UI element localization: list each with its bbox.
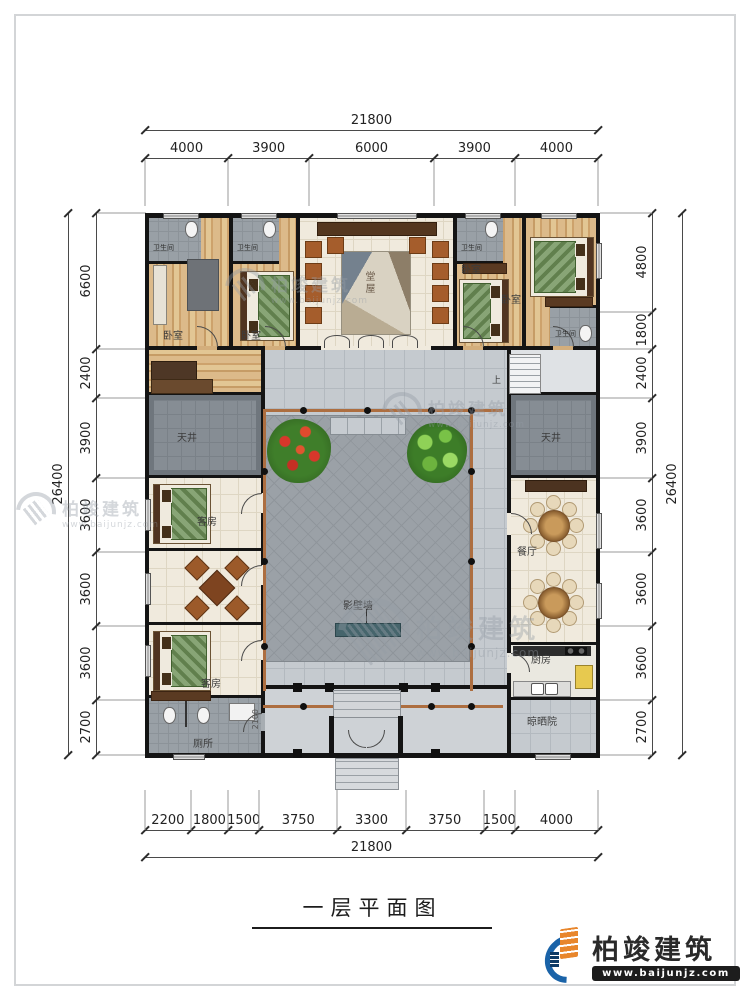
window bbox=[145, 573, 151, 605]
dim-value: 3900 bbox=[252, 141, 285, 156]
dim-value: 6600 bbox=[79, 264, 94, 297]
hall-door-arc bbox=[358, 335, 384, 348]
dim-value: 26400 bbox=[665, 463, 680, 504]
stairs-icon bbox=[509, 354, 541, 394]
hall-door-arc bbox=[324, 335, 350, 348]
company-logo: 柏竣建筑 www.baijunjz.com bbox=[546, 926, 741, 988]
dim-value: 3600 bbox=[79, 498, 94, 531]
window bbox=[173, 754, 205, 760]
cabinet-icon bbox=[545, 297, 593, 307]
entry-steps-inner bbox=[333, 690, 401, 718]
dim-value: 3300 bbox=[355, 813, 388, 828]
window bbox=[337, 213, 417, 219]
logo-block-icon bbox=[550, 952, 559, 967]
drying-yard-label: 晾晒院 bbox=[527, 713, 557, 728]
dim-value: 21800 bbox=[351, 840, 392, 855]
dining-label: 餐厅 bbox=[517, 543, 537, 558]
hall-label: 堂屋 bbox=[361, 271, 376, 295]
skywell-left-floor bbox=[149, 395, 261, 475]
floor-plan-sheet: 21800 40003900600039004000 2200180015003… bbox=[0, 0, 750, 1000]
wardrobe-icon bbox=[153, 265, 167, 325]
screen-wall-icon bbox=[335, 623, 401, 637]
bedroom-4-label: 卧室 bbox=[501, 291, 521, 306]
cabinet-icon bbox=[151, 379, 213, 394]
dresser-icon bbox=[187, 259, 219, 311]
window bbox=[596, 583, 602, 619]
dim-value: 2700 bbox=[635, 711, 650, 744]
bed-icon bbox=[530, 237, 594, 297]
floor-plan: 上 影壁墙 2100 bbox=[145, 213, 600, 758]
company-name: 柏竣建筑 bbox=[592, 928, 716, 967]
dim-value: 3600 bbox=[635, 646, 650, 679]
hob-icon bbox=[565, 647, 587, 655]
dim-value: 3900 bbox=[79, 421, 94, 454]
sideboard-icon bbox=[525, 480, 587, 492]
bathroom-1-label: 卫生间 bbox=[153, 243, 174, 253]
dim-bottom-segments: 22001800150037503300375015004000 bbox=[145, 830, 598, 831]
dining-table-icon bbox=[524, 573, 582, 631]
dim-value: 1800 bbox=[635, 313, 650, 346]
stairs-up-label: 上 bbox=[492, 373, 501, 386]
title-underline bbox=[252, 927, 492, 929]
dim-value: 3600 bbox=[79, 572, 94, 605]
bedroom-2-label: 卧室 bbox=[241, 327, 261, 342]
guestroom-2-label: 客房 bbox=[201, 675, 221, 690]
dim-value: 2400 bbox=[635, 357, 650, 390]
dim-value: 3750 bbox=[282, 813, 315, 828]
bathroom-4-label: 卫生间 bbox=[555, 329, 576, 339]
toilet-icon bbox=[263, 221, 276, 238]
skywell-right-label: 天井 bbox=[541, 429, 561, 444]
window bbox=[465, 213, 501, 219]
kitchen-label: 厨房 bbox=[531, 651, 551, 666]
cabinet-icon bbox=[151, 691, 211, 701]
dim-right-segments: 48001800240039003600360036002700 bbox=[652, 213, 653, 755]
window bbox=[241, 213, 277, 219]
console-table-icon bbox=[317, 222, 437, 236]
wall-east bbox=[596, 213, 600, 758]
dim-value: 4000 bbox=[540, 813, 573, 828]
drawing-title: 一层平面图 bbox=[255, 892, 490, 922]
logo-building-icon bbox=[560, 927, 578, 960]
bedroom-1-label: 卧室 bbox=[163, 327, 183, 342]
dim-left-total: 26400 bbox=[68, 213, 69, 755]
dim-right-total: 26400 bbox=[682, 213, 683, 755]
dim-top-segments: 40003900600039004000 bbox=[145, 158, 598, 159]
dim-value: 3600 bbox=[79, 646, 94, 679]
dim-value: 2700 bbox=[79, 711, 94, 744]
bedroom-3-label: 卧室 bbox=[461, 261, 481, 276]
inner-dimension: 2100 bbox=[251, 709, 260, 729]
dim-bottom-total: 21800 bbox=[145, 857, 598, 858]
dim-value: 4000 bbox=[540, 141, 573, 156]
dim-value: 21800 bbox=[351, 113, 392, 128]
dim-top-total: 21800 bbox=[145, 130, 598, 131]
screen-wall-label: 影壁墙 bbox=[343, 597, 373, 612]
dim-value: 4000 bbox=[170, 141, 203, 156]
toilet-icon bbox=[485, 221, 498, 238]
dim-value: 3600 bbox=[635, 498, 650, 531]
dim-value: 2400 bbox=[79, 357, 94, 390]
guestroom-1-label: 客房 bbox=[197, 513, 217, 528]
dim-value: 4800 bbox=[635, 246, 650, 279]
window bbox=[596, 513, 602, 549]
toilet-icon bbox=[185, 221, 198, 238]
fridge-icon bbox=[575, 665, 593, 689]
dim-value: 26400 bbox=[51, 463, 66, 504]
window bbox=[145, 645, 151, 677]
bathroom-3-label: 卫生间 bbox=[461, 243, 482, 253]
company-url: www.baijunjz.com bbox=[592, 966, 740, 981]
dim-value: 3900 bbox=[635, 421, 650, 454]
window bbox=[163, 213, 199, 219]
window bbox=[145, 499, 151, 531]
window bbox=[535, 754, 571, 760]
skywell-left-label: 天井 bbox=[177, 429, 197, 444]
hall-door-arc bbox=[392, 335, 418, 348]
hall-rug bbox=[341, 251, 411, 335]
dim-value: 2200 bbox=[151, 813, 184, 828]
dim-value: 3900 bbox=[458, 141, 491, 156]
bathroom-2-label: 卫生间 bbox=[237, 243, 258, 253]
toilet-room-label: 厕所 bbox=[193, 735, 213, 750]
window bbox=[596, 243, 602, 279]
dim-value: 1800 bbox=[193, 813, 226, 828]
bench-icon bbox=[330, 417, 406, 435]
dim-value: 3750 bbox=[428, 813, 461, 828]
entry-steps-outer bbox=[335, 758, 399, 790]
tea-table-icon bbox=[190, 561, 242, 613]
window bbox=[541, 213, 577, 219]
dim-value: 3600 bbox=[635, 572, 650, 605]
toilet-icon bbox=[579, 325, 592, 342]
dim-value: 6000 bbox=[355, 141, 388, 156]
dim-left-segments: 6600240039003600360036002700 bbox=[96, 213, 97, 755]
